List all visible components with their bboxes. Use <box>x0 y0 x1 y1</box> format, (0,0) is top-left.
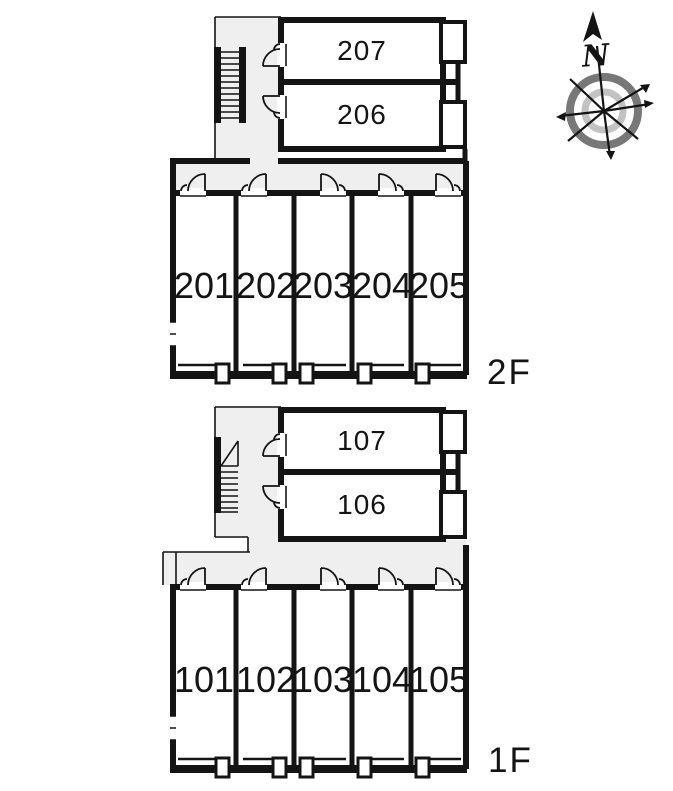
room-107-label: 107 <box>337 425 387 456</box>
room-104-label: 104 <box>352 659 412 700</box>
floor-label-2f: 2F <box>487 353 532 392</box>
room-202-label: 202 <box>236 265 296 306</box>
compass-north-label: N <box>580 38 612 75</box>
room-203-label: 203 <box>293 265 353 306</box>
building-floor-plan: 207 206 <box>0 0 673 791</box>
compass-arrowhead-west <box>556 112 566 121</box>
corridor-band-fill-right-1f <box>278 540 466 556</box>
balcony-step-105 <box>416 758 429 777</box>
compass-north-arrow <box>583 11 602 42</box>
floor-1f: 107 106 <box>163 407 533 780</box>
room-206-label: 206 <box>337 99 387 130</box>
upper-room-block-1f: 107 106 <box>263 410 465 539</box>
balcony-step-104 <box>358 758 371 777</box>
balcony-step-203 <box>300 364 313 383</box>
room-205-label: 205 <box>409 265 469 306</box>
room-106-label: 106 <box>337 489 387 520</box>
room-201-label: 201 <box>174 265 234 306</box>
balcony-step-201 <box>216 364 229 383</box>
balcony-step-101 <box>216 758 229 777</box>
compass-arrowhead-south <box>606 151 615 160</box>
room-204-label: 204 <box>352 265 412 306</box>
room-206-balcony-box <box>441 102 465 147</box>
room-101-label: 101 <box>174 659 234 700</box>
balcony-step-202 <box>273 364 286 383</box>
room-207-balcony-box <box>441 22 465 62</box>
floor-label-1f: 1F <box>488 741 533 780</box>
room-105-label: 105 <box>409 659 469 700</box>
balcony-step-205 <box>416 364 429 383</box>
compass: N <box>556 11 654 160</box>
upper-room-block-2f: 207 206 <box>263 20 465 162</box>
floor-2f: 207 206 <box>170 17 532 392</box>
balcony-step-102 <box>273 758 286 777</box>
room-207-label: 207 <box>337 35 387 66</box>
stair-rail-right-2f <box>239 47 246 123</box>
floor-plan-canvas: 207 206 <box>0 0 673 791</box>
room-102-label: 102 <box>236 659 296 700</box>
compass-arrowhead-east <box>644 100 654 108</box>
stair-rail-left-1f <box>214 437 221 513</box>
stair-hall-fill-2f <box>215 17 278 162</box>
row-room-block-2f: 201 202 203 204 205 <box>170 158 469 383</box>
corridor-band-fill-1f <box>163 552 468 585</box>
window-room-201 <box>170 322 176 346</box>
room-103-label: 103 <box>293 659 353 700</box>
room-107-balcony-box <box>441 412 465 452</box>
balcony-step-103 <box>300 758 313 777</box>
room-106-balcony-box <box>441 492 465 537</box>
stair-rail-left-2f <box>214 47 221 123</box>
balcony-step-204 <box>358 364 371 383</box>
window-room-101 <box>170 716 176 740</box>
